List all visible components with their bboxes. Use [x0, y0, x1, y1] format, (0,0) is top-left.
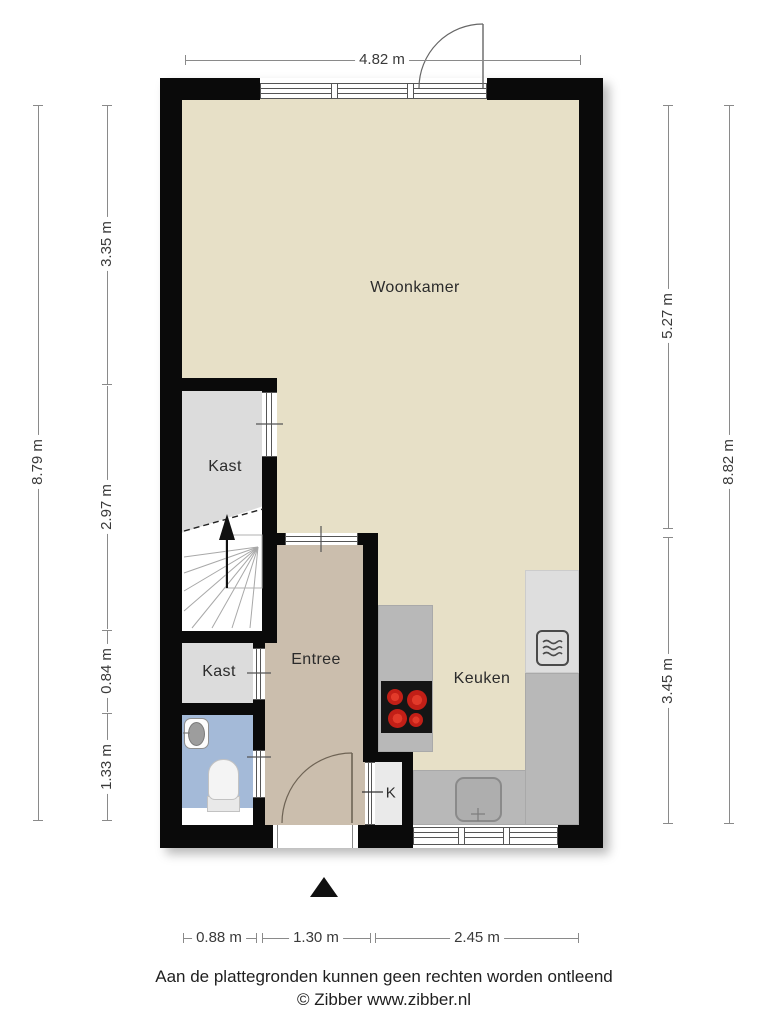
dim-tick [102, 713, 112, 714]
dim-tick [256, 933, 257, 943]
wall-entree-top-b [358, 533, 378, 545]
window-mullion [331, 84, 338, 98]
dim-label-2-97: 2.97 m [99, 480, 116, 534]
keuken-label: Keuken [454, 670, 511, 688]
front-door-opening [273, 825, 358, 848]
entree-floor-lower [265, 643, 365, 825]
wall-top-right [487, 78, 603, 100]
dim-tick [102, 630, 112, 631]
dim-label-left-outer: 8.79 m [30, 435, 47, 489]
woonkamer-label: Woonkamer [370, 279, 460, 297]
dim-tick [580, 55, 581, 65]
kitchen-sink-icon [455, 777, 502, 822]
wall-k-top [363, 752, 413, 762]
dim-tick [375, 933, 376, 943]
wall-bottom-left [160, 825, 273, 848]
dim-tick [724, 823, 734, 824]
burner-icon [409, 713, 423, 727]
floorplan-page: Woonkamer Kast Entree Kast Keuken K 4.82… [0, 0, 768, 1024]
footer: Aan de plattegronden kunnen geen rechten… [0, 967, 768, 1010]
dim-tick [724, 105, 734, 106]
burner-icon [388, 709, 407, 728]
dim-tick [578, 933, 579, 943]
dim-tick [33, 820, 43, 821]
threshold-line [277, 825, 278, 848]
wall-left [160, 78, 182, 848]
kast1-label: Kast [208, 458, 242, 476]
wall-kast2-bottom [182, 703, 253, 715]
stove-icon [381, 681, 432, 733]
wall-top-left [160, 78, 260, 100]
wall-right [579, 78, 603, 848]
wall-entree-top-a [270, 533, 285, 545]
dim-tick [262, 933, 263, 943]
dim-tick [370, 933, 371, 943]
dim-label-5-27: 5.27 m [660, 289, 677, 343]
toilet-icon [208, 759, 239, 800]
burner-icon [387, 689, 403, 705]
burner-icon [407, 690, 427, 710]
dim-label-right-outer: 8.82 m [721, 435, 738, 489]
kast2-door [253, 648, 265, 700]
wall-stairs-bottom [182, 631, 262, 643]
bathroom-door [253, 750, 265, 798]
wall-kast2-right-b [253, 700, 265, 750]
entree-label: Entree [291, 651, 341, 669]
entree-floor-upper [275, 533, 365, 643]
dim-tick [663, 823, 673, 824]
dim-label-top: 4.82 m [355, 52, 409, 69]
kast1-door [262, 392, 277, 457]
dim-tick [663, 528, 673, 529]
disclaimer-text: Aan de plattegronden kunnen geen rechten… [0, 967, 768, 987]
dim-tick [185, 55, 186, 65]
wall-bath-right [253, 798, 265, 825]
k-closet-door [365, 762, 375, 825]
dim-tick [663, 105, 673, 106]
washbasin-bowl [188, 722, 205, 746]
top-window [260, 83, 487, 99]
threshold-line [352, 825, 353, 848]
dim-tick [102, 384, 112, 385]
dim-label-3-45: 3.45 m [660, 654, 677, 708]
wall-entree-right [363, 545, 378, 752]
dim-tick [102, 820, 112, 821]
wall-bottom-middle [358, 825, 413, 848]
microwave-icon [536, 630, 569, 666]
dim-label-2-45: 2.45 m [450, 930, 504, 947]
wall-kast1-right-b [262, 457, 277, 643]
dim-label-0-84: 0.84 m [99, 644, 116, 698]
kitchen-window [413, 827, 558, 845]
kast2-label: Kast [202, 663, 236, 681]
kitchen-counter-right [525, 673, 579, 825]
dim-label-3-35: 3.35 m [99, 217, 116, 271]
window-mullion [503, 828, 510, 844]
credit-text: © Zibber www.zibber.nl [0, 990, 768, 1010]
dim-tick [33, 105, 43, 106]
north-arrow-icon [310, 877, 338, 897]
dim-tick [183, 933, 184, 943]
window-mullion [458, 828, 465, 844]
dim-tick [102, 105, 112, 106]
wall-kast1-right-a [262, 378, 277, 392]
washbasin-icon [184, 718, 209, 749]
window-mullion [407, 84, 414, 98]
dim-tick [663, 537, 673, 538]
dim-label-1-30: 1.30 m [289, 930, 343, 947]
wall-bottom-right [558, 825, 603, 848]
entree-door [285, 533, 358, 545]
dim-label-0-88: 0.88 m [192, 930, 246, 947]
wall-k-right [402, 762, 413, 825]
k-closet-label: K [386, 785, 396, 802]
dim-label-1-33: 1.33 m [99, 740, 116, 794]
